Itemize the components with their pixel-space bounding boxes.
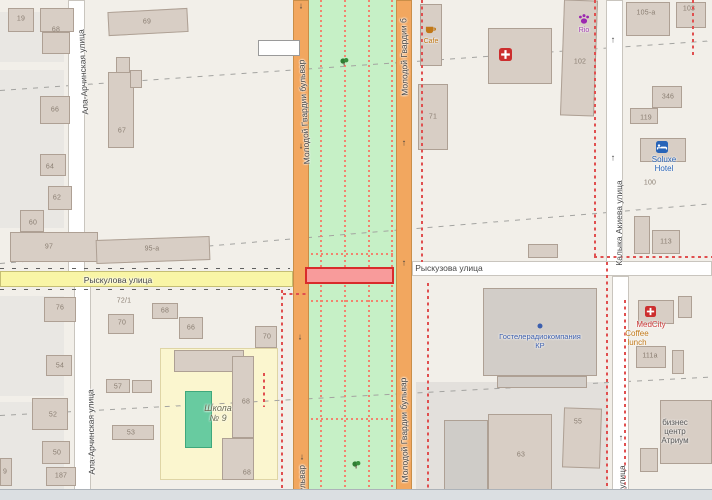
tree-icon [340,57,349,66]
oneway-arrow-icon: ↓ [298,333,303,342]
housenumber-label: 19 [17,16,25,23]
oneway-arrow-icon: ↑ [402,259,407,268]
boundary-red-dashed [263,373,265,407]
boundary-red-dashed [283,293,309,295]
coffee-lunch-label: Coffeelunch [625,329,648,347]
boundary-red-dashed [427,283,429,500]
housenumber-label: 52 [49,412,57,419]
housenumber-label: 72/1 [117,298,131,305]
petshop-rio-label: Rio [579,27,590,35]
street-label: Рыскулова улица [84,275,153,285]
oneway-arrow-icon: ↑ [611,36,616,45]
housenumber-label: 346 [662,94,674,101]
building [132,380,152,393]
boundary-red-dashed [692,0,694,55]
broadcaster-label: ГостелерадиокомпанияКР [499,333,581,350]
housenumber-label: 187 [55,473,67,480]
housenumber-label: 60 [29,220,37,227]
housenumber-label: 102 [574,59,586,66]
paw-icon [578,13,590,25]
housenumber-label: 70 [118,320,126,327]
housenumber-label: 69 [143,19,151,26]
housenumber-label: 63 [517,452,525,459]
oneway-arrow-icon: ↑ [611,154,616,163]
housenumber-label: 70 [263,334,271,341]
street-label: Калыка Акиева улица [614,180,624,265]
medcity-label: MedCity [636,320,665,329]
building [640,448,658,472]
map-canvas[interactable]: ↓↓↓↓↑↑↑↑↑Ала-Арчинская улицаАла-Арчинска… [0,0,712,500]
building [420,4,442,66]
housenumber-label: 66 [187,325,195,332]
school-label: Школа№ 9 [204,403,231,424]
building [42,32,70,54]
building [130,70,142,88]
housenumber-label: 68 [243,470,251,477]
housenumber-label: 68 [52,27,60,34]
housenumber-label: 71 [429,114,437,121]
landuse-grass-median [309,0,396,500]
building [232,356,254,438]
footpath-dotted [311,253,396,255]
housenumber-label: 113 [660,239,672,246]
footpath-dotted [391,0,393,500]
housenumber-label: 100 [644,180,656,187]
housenumber-label: 68 [242,399,250,406]
housenumber-label: 66 [51,107,59,114]
oneway-arrow-icon: ↑ [619,434,624,443]
footpath-dotted [344,0,346,500]
housenumber-label: 97 [45,244,53,251]
building [672,350,684,374]
road-tick-marks [0,268,290,270]
atrium-label: бизнесцентрАтриум [661,418,688,446]
selection-highlight[interactable] [305,267,394,284]
street-label: Ала-Арчинская улица [85,389,96,475]
housenumber-label: 9 [3,469,7,476]
street-label: Молодой Гвардии бульвар [398,378,410,483]
boundary-red-dashed [594,256,712,258]
footpath-dotted [368,0,370,500]
housenumber-label: 54 [56,363,64,370]
boundary-red-dashed [606,262,608,500]
housenumber-label: 53 [127,430,135,437]
boundary-red-dashed [281,290,283,500]
footpath-dotted [311,300,396,302]
housenumber-label: 50 [53,450,61,457]
street-label: улица [617,465,627,488]
building [528,244,558,258]
housenumber-label: 64 [46,164,54,171]
building [497,376,587,388]
housenumber-label: 62 [53,195,61,202]
pharmacy-icon [499,48,512,61]
housenumber-label: 57 [114,384,122,391]
building [626,2,670,36]
housenumber-label: 105-а [637,10,656,17]
soluxe-hotel-label: SoluxeHotel [652,155,676,173]
tree-icon [352,460,361,469]
building [10,232,98,262]
housenumber-label: 119 [640,115,652,122]
cafe-icon [425,24,436,35]
cafe-label: Cafe [424,38,439,46]
oneway-arrow-icon: ↑ [402,139,407,148]
oneway-arrow-icon: ↓ [300,453,305,462]
housenumber-label: 111а [642,353,657,360]
building [634,216,650,254]
hotel-bed-icon [656,141,668,153]
boundary-red-dashed [421,0,423,262]
footpath-dotted [320,0,322,500]
medcity-clinic-icon [645,306,656,317]
building [562,407,602,468]
housenumber-label: 76 [56,305,64,312]
building [444,420,488,494]
boundary-red-dashed [594,0,596,256]
oneway-arrow-icon: ↓ [299,2,304,11]
housenumber-label: 95-а [145,246,160,253]
building [258,40,300,56]
status-bar [0,489,712,500]
footpath-dotted [311,418,396,420]
housenumber-label: 68 [161,308,169,315]
housenumber-label: 55 [574,419,582,426]
street-label: Молодой Гвардии б [398,18,409,96]
building [678,296,692,318]
poi-dot-icon [537,323,543,329]
street-label: Рыскузова улица [415,263,483,273]
road-tick-marks [0,289,290,291]
housenumber-label: 67 [118,128,126,135]
